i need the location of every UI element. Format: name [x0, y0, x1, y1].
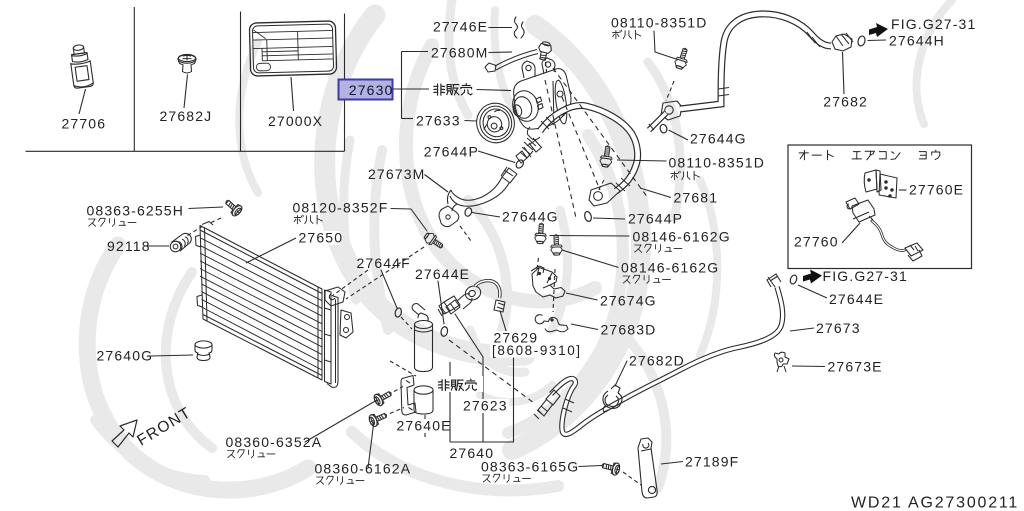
svg-text:08363-6255H: 08363-6255H	[87, 203, 185, 219]
svg-text:27706: 27706	[62, 116, 107, 132]
svg-text:08120-8352F: 08120-8352F	[293, 200, 389, 216]
svg-text:27674G: 27674G	[600, 293, 657, 309]
svg-text:27623: 27623	[463, 398, 508, 414]
svg-text:[8608-9310]: [8608-9310]	[492, 343, 582, 358]
svg-text:08146-6162G: 08146-6162G	[621, 260, 719, 276]
svg-text:27633: 27633	[416, 113, 461, 129]
svg-text:27683D: 27683D	[601, 322, 657, 338]
svg-text:27746E: 27746E	[433, 19, 488, 35]
svg-text:27682J: 27682J	[160, 108, 213, 124]
svg-text:08110-8351D: 08110-8351D	[669, 155, 765, 171]
svg-text:27000X: 27000X	[268, 113, 323, 129]
svg-text:WD21 AG27300211: WD21 AG27300211	[851, 495, 1019, 511]
svg-text:27760E: 27760E	[909, 182, 964, 198]
svg-text:FIG.G27-31: FIG.G27-31	[823, 268, 908, 284]
svg-text:27640E: 27640E	[397, 418, 452, 434]
svg-text:27189F: 27189F	[685, 454, 739, 470]
svg-text:27673M: 27673M	[368, 166, 426, 182]
svg-text:08363-6165G: 08363-6165G	[481, 459, 579, 475]
svg-text:27682: 27682	[823, 94, 868, 110]
svg-text:08360-6162A: 08360-6162A	[315, 461, 412, 477]
svg-text:27760: 27760	[794, 234, 839, 250]
svg-text:27650: 27650	[299, 230, 344, 246]
svg-text:27644H: 27644H	[889, 33, 945, 49]
svg-text:27644F: 27644F	[357, 255, 411, 271]
svg-text:08110-8351D: 08110-8351D	[611, 15, 707, 31]
svg-text:27673E: 27673E	[828, 359, 883, 375]
svg-text:27630: 27630	[349, 82, 394, 98]
svg-text:27681: 27681	[674, 190, 719, 206]
svg-text:27644E: 27644E	[415, 266, 470, 282]
svg-text:27680M: 27680M	[431, 45, 489, 61]
svg-text:08146-6162G: 08146-6162G	[633, 229, 731, 245]
svg-text:27644P: 27644P	[424, 144, 479, 160]
svg-text:27644P: 27644P	[628, 211, 683, 227]
svg-text:27644G: 27644G	[690, 131, 747, 147]
svg-text:27640G: 27640G	[97, 348, 154, 364]
svg-text:FIG.G27-31: FIG.G27-31	[891, 16, 976, 32]
svg-text:08360-6352A: 08360-6352A	[226, 434, 323, 450]
svg-text:27644G: 27644G	[502, 209, 559, 225]
svg-text:27682D: 27682D	[629, 353, 685, 369]
svg-text:27673: 27673	[816, 320, 861, 336]
svg-text:27644E: 27644E	[829, 291, 884, 307]
